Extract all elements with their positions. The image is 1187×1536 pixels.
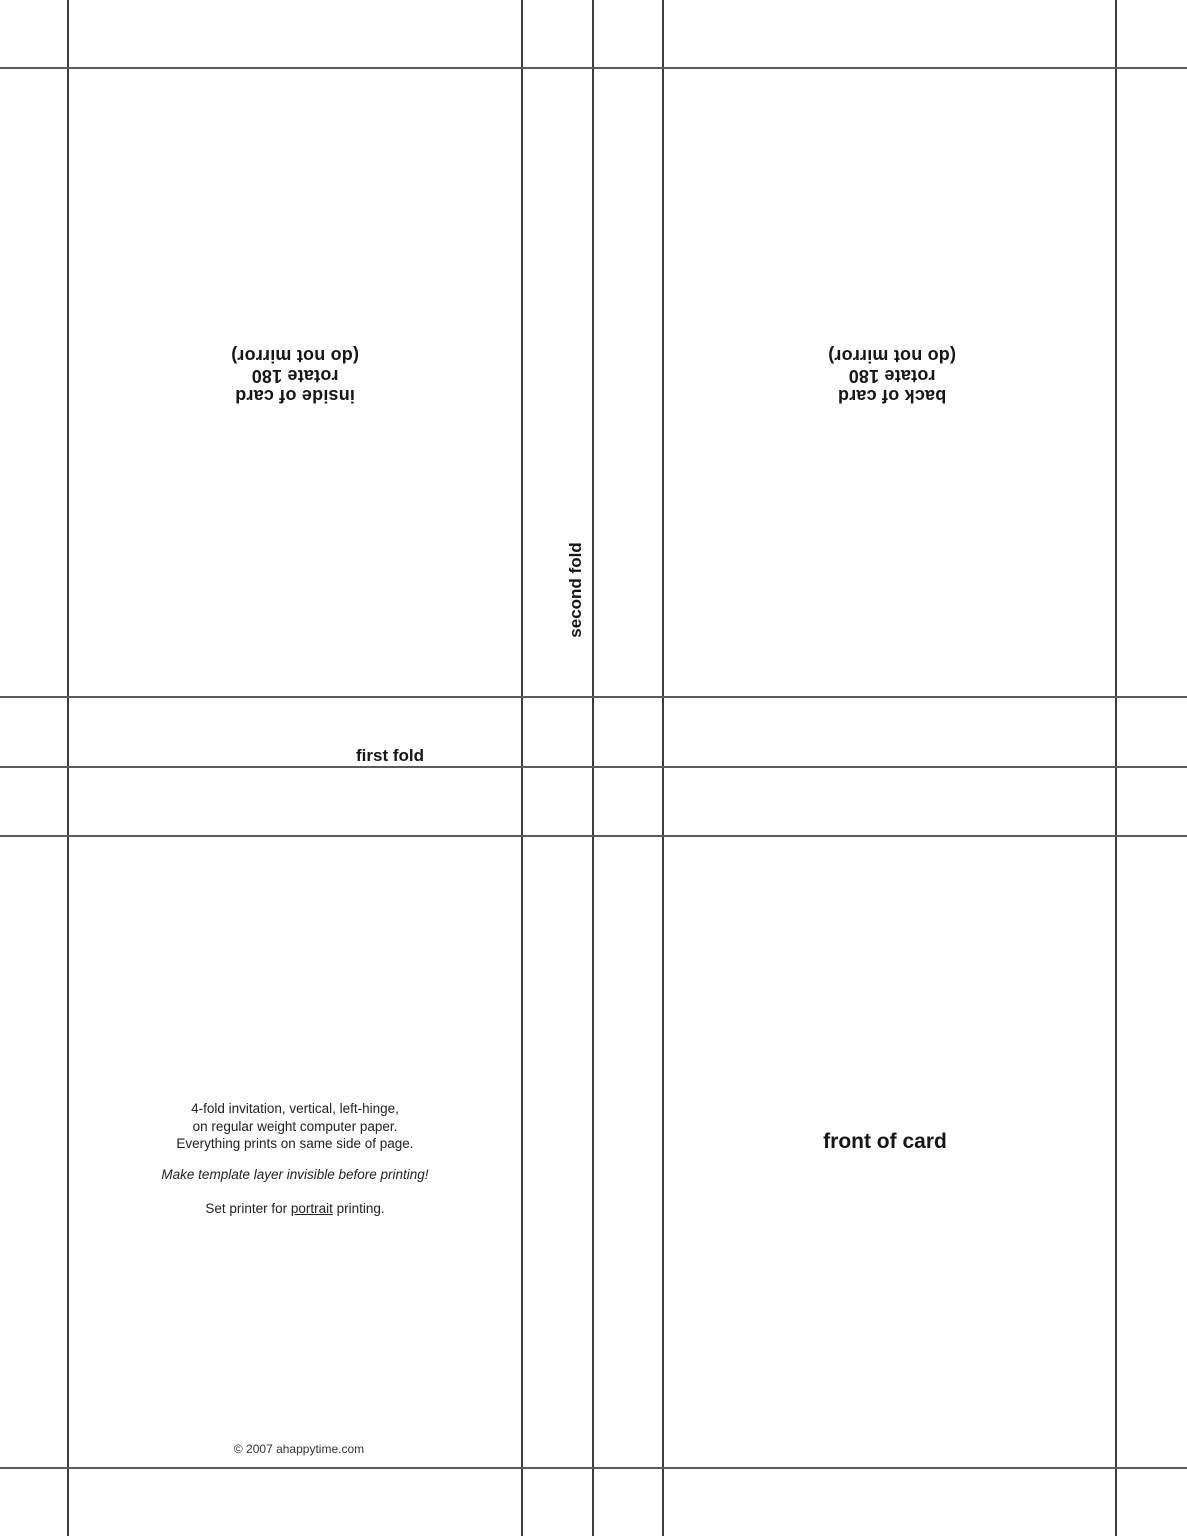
back-card-label-line1: back of card — [767, 386, 1017, 406]
inside-card-label-line3: (do not mirror) — [170, 346, 420, 366]
cut-line-horizontal-bottom — [0, 1467, 1187, 1469]
instructions-line2: on regular weight computer paper. — [120, 1118, 470, 1136]
fold-line-vertical-center — [592, 0, 594, 1536]
second-fold-label: second fold — [567, 540, 585, 640]
printer-line-suffix: printing. — [333, 1201, 385, 1216]
printer-line-prefix: Set printer for — [205, 1201, 291, 1216]
cut-line-vertical-right — [1115, 0, 1117, 1536]
instructions-line3: Everything prints on same side of page. — [120, 1135, 470, 1153]
fold-line-horizontal-upper — [0, 696, 1187, 698]
inside-card-label-line1: inside of card — [170, 386, 420, 406]
cut-line-horizontal-top — [0, 67, 1187, 69]
fold-line-vertical-inner-left — [521, 0, 523, 1536]
printer-setting-line: Set printer for portrait printing. — [120, 1200, 470, 1218]
inside-card-label-line2: rotate 180 — [170, 366, 420, 386]
instructions-line1: 4-fold invitation, vertical, left-hinge, — [120, 1100, 470, 1118]
first-fold-label: first fold — [330, 747, 450, 765]
fold-line-horizontal-middle — [0, 766, 1187, 768]
back-card-label: back of card rotate 180 (do not mirror) — [767, 346, 1017, 406]
fold-line-vertical-inner-right — [662, 0, 664, 1536]
front-card-label: front of card — [785, 1130, 985, 1154]
fold-line-horizontal-lower — [0, 835, 1187, 837]
instructions-paragraph: 4-fold invitation, vertical, left-hinge,… — [120, 1100, 470, 1153]
cut-line-vertical-left — [67, 0, 69, 1536]
template-page: inside of card rotate 180 (do not mirror… — [0, 0, 1187, 1536]
copyright-notice: © 2007 ahappytime.com — [199, 1442, 399, 1456]
instructions-block: 4-fold invitation, vertical, left-hinge,… — [120, 1100, 470, 1218]
back-card-label-line2: rotate 180 — [767, 366, 1017, 386]
template-layer-note: Make template layer invisible before pri… — [120, 1166, 470, 1184]
inside-card-label: inside of card rotate 180 (do not mirror… — [170, 346, 420, 406]
back-card-label-line3: (do not mirror) — [767, 346, 1017, 366]
printer-orientation-word: portrait — [291, 1201, 333, 1216]
